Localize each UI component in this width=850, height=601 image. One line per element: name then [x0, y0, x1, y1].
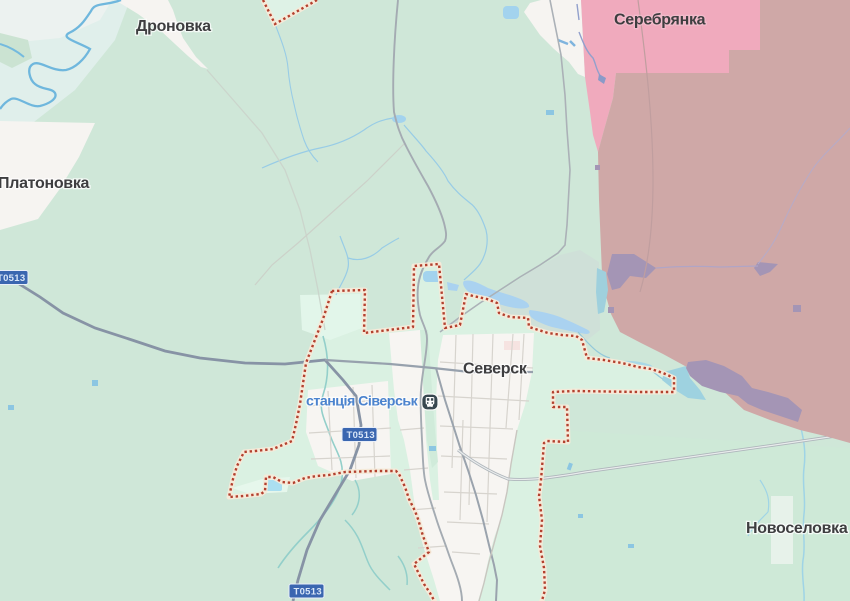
svg-text:Серебрянка: Серебрянка [614, 12, 706, 29]
svg-text:Новоселовка: Новоселовка [746, 520, 848, 537]
svg-text:Северск: Северск [463, 361, 528, 378]
svg-text:T0513: T0513 [347, 430, 375, 441]
svg-text:T0513: T0513 [0, 273, 25, 284]
svg-text:станція Сіверськ: станція Сіверськ [306, 394, 419, 410]
svg-text:T0513: T0513 [294, 587, 322, 598]
svg-text:Дроновка: Дроновка [136, 18, 211, 35]
svg-text:Платоновка: Платоновка [0, 175, 90, 192]
